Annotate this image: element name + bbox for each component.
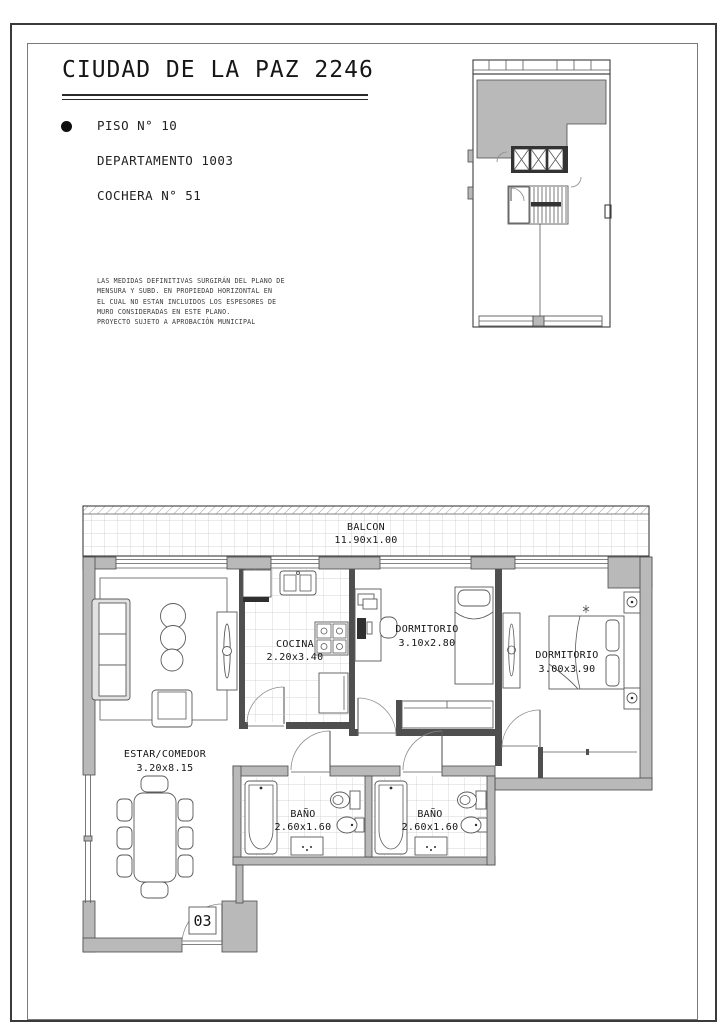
closet — [543, 749, 637, 755]
single-bed — [455, 587, 493, 684]
kitchen-label: COCINA — [276, 639, 314, 650]
sofa — [92, 599, 130, 700]
vanity — [291, 837, 323, 855]
coffee-tables — [161, 604, 186, 672]
bathtub — [245, 781, 277, 854]
nightstand-top — [624, 592, 640, 613]
room-bath-1: BAÑO 2.60x1.60 — [241, 776, 365, 857]
decor-mark — [583, 605, 589, 613]
bedroom-1-door — [358, 698, 396, 736]
bedroom-2-label: DORMITORIO — [535, 650, 598, 661]
bath-1-door — [291, 731, 330, 772]
balcony-label: BALCON — [347, 522, 385, 533]
kitchen-dims: 2.20x3.40 — [267, 652, 324, 663]
kitchen-sink — [280, 571, 316, 595]
room-bedroom-1: DORMITORIO 3.10x2.80 — [355, 587, 493, 729]
wardrobe — [396, 700, 493, 729]
living-dims: 3.20x8.15 — [137, 763, 194, 774]
bath-1-label: BAÑO — [290, 807, 315, 820]
armchair — [152, 690, 192, 727]
plan-drawing: BALCON 11.90x1.00 — [0, 0, 728, 1011]
floor-plan: BALCON 11.90x1.00 — [83, 506, 652, 952]
dining-table-set — [117, 776, 193, 898]
toilet — [458, 791, 487, 809]
staircase — [508, 186, 568, 224]
elevators — [511, 146, 568, 173]
kitchen-counter — [243, 570, 271, 602]
bedroom-1-dims: 3.10x2.80 — [399, 638, 456, 649]
room-bath-2: BAÑO 2.60x1.60 — [372, 776, 487, 857]
room-bedroom-2: DORMITORIO 3.00x3.90 — [503, 592, 640, 755]
stove — [315, 622, 348, 655]
site-key-plan — [468, 60, 611, 327]
bedroom-1-label: DORMITORIO — [395, 624, 458, 635]
bath-2-label: BAÑO — [417, 807, 442, 820]
balcony-dims: 11.90x1.00 — [334, 535, 397, 546]
desk — [355, 589, 381, 661]
nightstand-bottom — [624, 688, 640, 709]
fridge — [319, 673, 348, 713]
bedroom-2-dims: 3.00x3.90 — [539, 664, 596, 675]
balcony: BALCON 11.90x1.00 — [83, 506, 649, 556]
tv-unit — [217, 612, 237, 690]
toilet — [331, 791, 361, 809]
bidet — [337, 817, 364, 833]
entry-number: 03 — [189, 907, 216, 934]
room-living-dining: ESTAR/COMEDOR 3.20x8.15 03 — [92, 578, 237, 934]
bathtub — [375, 781, 407, 854]
vanity — [415, 837, 447, 855]
living-label: ESTAR/COMEDOR — [124, 749, 207, 760]
bath-1-dims: 2.60x1.60 — [275, 822, 332, 833]
bath-2-door — [403, 731, 442, 772]
bedroom-2-door — [502, 710, 540, 748]
dresser — [503, 613, 520, 688]
bath-2-dims: 2.60x1.60 — [402, 822, 459, 833]
bidet — [461, 817, 487, 833]
entry-number-label: 03 — [193, 912, 211, 930]
room-kitchen: COCINA 2.20x3.40 — [243, 569, 349, 722]
